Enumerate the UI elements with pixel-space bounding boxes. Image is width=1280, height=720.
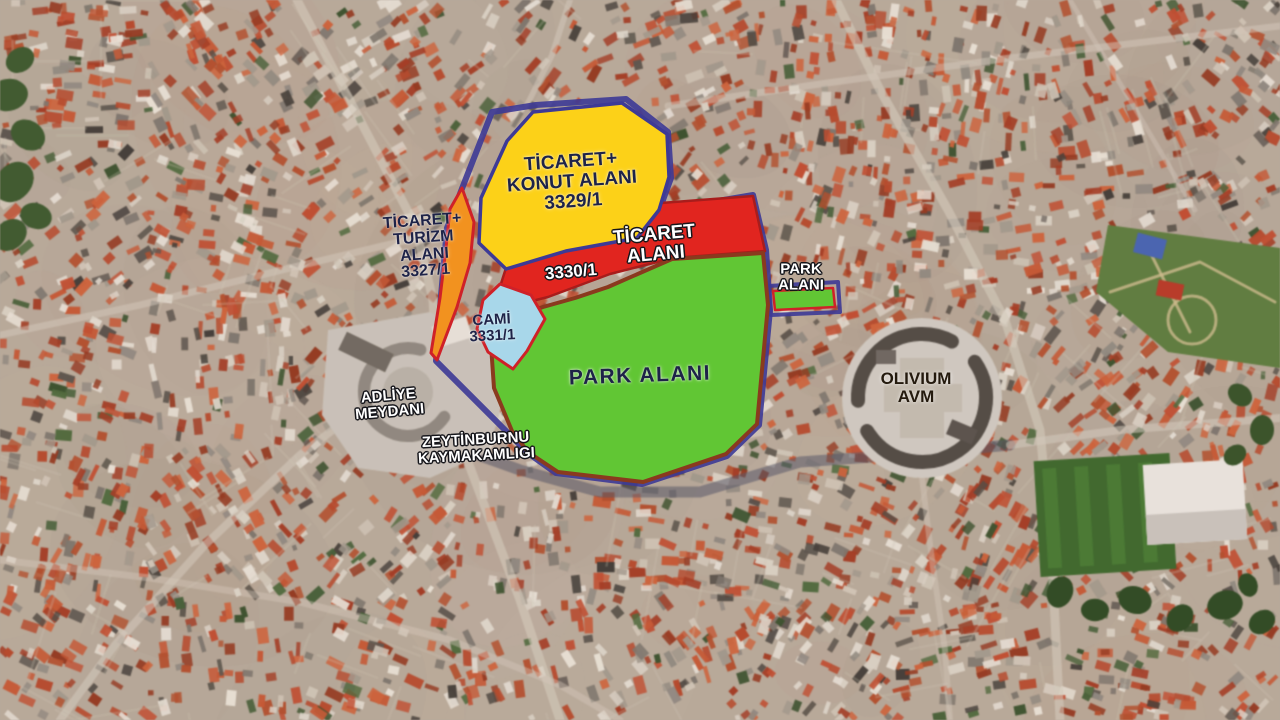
satellite-zoning-map: TİCARET+ KONUT ALANI 3329/1 TİCARET+ TUR… xyxy=(0,0,1280,720)
label-zeytinburnu-kaymakamligi: ZEYTİNBURNU KAYMAKAMLIGI xyxy=(417,429,535,467)
zoning-overlay xyxy=(0,0,1280,720)
label-line: ALANI xyxy=(778,277,824,293)
label-line: 3331/1 xyxy=(469,327,516,345)
label-line: PARK xyxy=(778,261,824,277)
label-ticaret-turizm: TİCARET+ TURİZM ALANI 3327/1 xyxy=(382,211,465,284)
label-cami: CAMİ 3331/1 xyxy=(468,311,515,345)
label-olivium-avm: OLIVIUM AVM xyxy=(881,370,952,406)
label-ticaret-konut: TİCARET+ KONUT ALANI 3329/1 xyxy=(505,148,639,217)
label-line: AVM xyxy=(881,388,952,406)
label-park-small: PARK ALANI xyxy=(778,261,824,293)
label-line: OLIVIUM xyxy=(881,370,952,388)
label-ticaret-alani: TİCARET ALANI xyxy=(612,222,697,269)
label-adliye-meydani: ADLİYE MEYDANI xyxy=(353,385,425,422)
